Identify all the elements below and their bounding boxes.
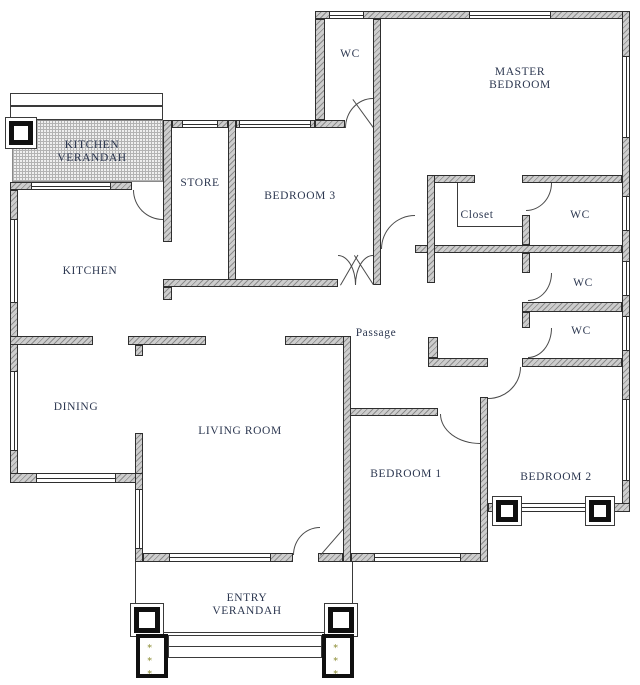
wall-segment xyxy=(172,120,183,128)
window-opening xyxy=(470,11,550,19)
wall-segment xyxy=(10,473,37,483)
window-opening xyxy=(37,473,115,483)
window-opening xyxy=(32,182,110,190)
wall-segment xyxy=(522,358,622,367)
room-label-bedroom-3: BEDROOM 3 xyxy=(248,190,352,203)
room-label-dining: DINING xyxy=(40,401,112,414)
window-opening xyxy=(330,11,363,19)
wall-segment xyxy=(363,11,470,19)
edge-line xyxy=(168,635,322,636)
wall-segment xyxy=(427,175,435,283)
wall-segment xyxy=(315,19,325,120)
door-swing-arc xyxy=(440,414,480,444)
column xyxy=(134,607,160,633)
wall-segment xyxy=(110,182,132,190)
column xyxy=(589,500,611,522)
plant-symbols: ∗ ∗ ∗ ∗ xyxy=(332,641,343,678)
wall-segment xyxy=(135,473,143,490)
wall-segment xyxy=(128,336,206,345)
door-swing-arc xyxy=(528,273,552,301)
window-opening xyxy=(183,120,217,128)
column xyxy=(496,500,518,522)
room-label-passage: Passage xyxy=(344,327,408,340)
wall-segment xyxy=(350,408,438,416)
wall-segment xyxy=(550,11,630,19)
window-opening xyxy=(170,553,270,562)
window-opening xyxy=(10,220,18,302)
wall-segment xyxy=(10,190,18,220)
wall-segment xyxy=(428,358,488,367)
edge-line xyxy=(168,657,322,658)
column xyxy=(328,607,354,633)
wall-segment xyxy=(315,11,330,19)
wall-segment xyxy=(622,137,630,197)
wall-segment xyxy=(143,553,170,562)
wall-segment xyxy=(343,336,351,562)
room-label-wc-lower: WC xyxy=(559,325,603,338)
window-opening xyxy=(375,553,460,562)
wall-segment xyxy=(351,553,375,562)
edge-line xyxy=(168,646,322,647)
door-swing-arc xyxy=(293,527,320,555)
room-label-kitchen: KITCHEN xyxy=(53,265,127,278)
wall-segment xyxy=(522,302,622,312)
room-label-wc-middle: WC xyxy=(561,277,605,290)
room-label-entry-verandah: ENTRY VERANDAH xyxy=(197,592,297,618)
door-swing-arc xyxy=(528,328,552,358)
wall-segment xyxy=(10,336,93,345)
window-opening xyxy=(622,317,630,350)
door-swing-arc xyxy=(526,183,552,211)
wall-segment xyxy=(428,337,438,358)
plant-symbols: ∗ ∗ ∗ ∗ xyxy=(146,641,157,678)
window-opening xyxy=(622,197,630,230)
wall-segment xyxy=(310,120,315,128)
door-swing-arc xyxy=(488,367,521,399)
edge-line xyxy=(168,635,169,657)
wall-segment xyxy=(228,120,236,287)
door-swing-arc xyxy=(133,190,163,220)
room-label-bedroom-1: BEDROOM 1 xyxy=(354,468,458,481)
door-leaf xyxy=(320,529,344,556)
window-opening xyxy=(622,57,630,137)
wall-segment xyxy=(622,350,630,400)
wall-segment xyxy=(622,295,630,317)
wall-segment xyxy=(622,230,630,262)
edge-line xyxy=(135,632,353,633)
room-label-master-bedroom: MASTER BEDROOM xyxy=(468,66,572,92)
wall-segment xyxy=(135,548,143,562)
room-label-store: STORE xyxy=(168,177,232,190)
window-opening xyxy=(10,372,18,450)
wall-segment xyxy=(10,182,32,190)
column xyxy=(9,121,33,145)
wall-segment xyxy=(135,345,143,356)
room-label-kitchen-verandah: KITCHEN VERANDAH xyxy=(42,139,142,165)
room-label-living-room: LIVING ROOM xyxy=(198,425,282,438)
wall-segment xyxy=(163,279,338,287)
step-line xyxy=(10,93,163,106)
window-opening xyxy=(622,262,630,295)
door-swing-arc xyxy=(381,215,415,249)
floor-plan: ∗ ∗ ∗ ∗ ∗ ∗ ∗ ∗ KITCHEN VERANDAH STORE B… xyxy=(0,0,640,685)
room-label-closet: Closet xyxy=(447,209,507,222)
planter-box-right: ∗ ∗ ∗ ∗ xyxy=(322,634,354,678)
room-label-wc-ensuite: WC xyxy=(558,209,602,222)
wall-segment xyxy=(285,336,350,345)
planter-box-left: ∗ ∗ ∗ ∗ xyxy=(136,634,168,678)
room-label-bedroom-2: BEDROOM 2 xyxy=(504,471,608,484)
wall-segment xyxy=(613,503,630,512)
wall-segment xyxy=(522,253,530,273)
window-opening xyxy=(240,120,310,128)
window-opening xyxy=(135,490,143,548)
wall-segment xyxy=(522,312,530,328)
wall-segment xyxy=(315,120,345,128)
window-opening xyxy=(520,503,588,512)
wall-segment xyxy=(622,11,630,57)
wall-segment xyxy=(163,287,172,300)
window-opening xyxy=(622,400,630,480)
wall-segment xyxy=(480,397,488,562)
wall-segment xyxy=(270,553,293,562)
wall-segment xyxy=(415,245,622,253)
edge-line xyxy=(457,226,523,227)
wall-segment xyxy=(522,175,622,183)
room-label-wc-top: WC xyxy=(330,48,370,61)
wall-segment xyxy=(373,19,381,285)
wall-segment xyxy=(522,215,530,245)
wall-segment xyxy=(217,120,228,128)
